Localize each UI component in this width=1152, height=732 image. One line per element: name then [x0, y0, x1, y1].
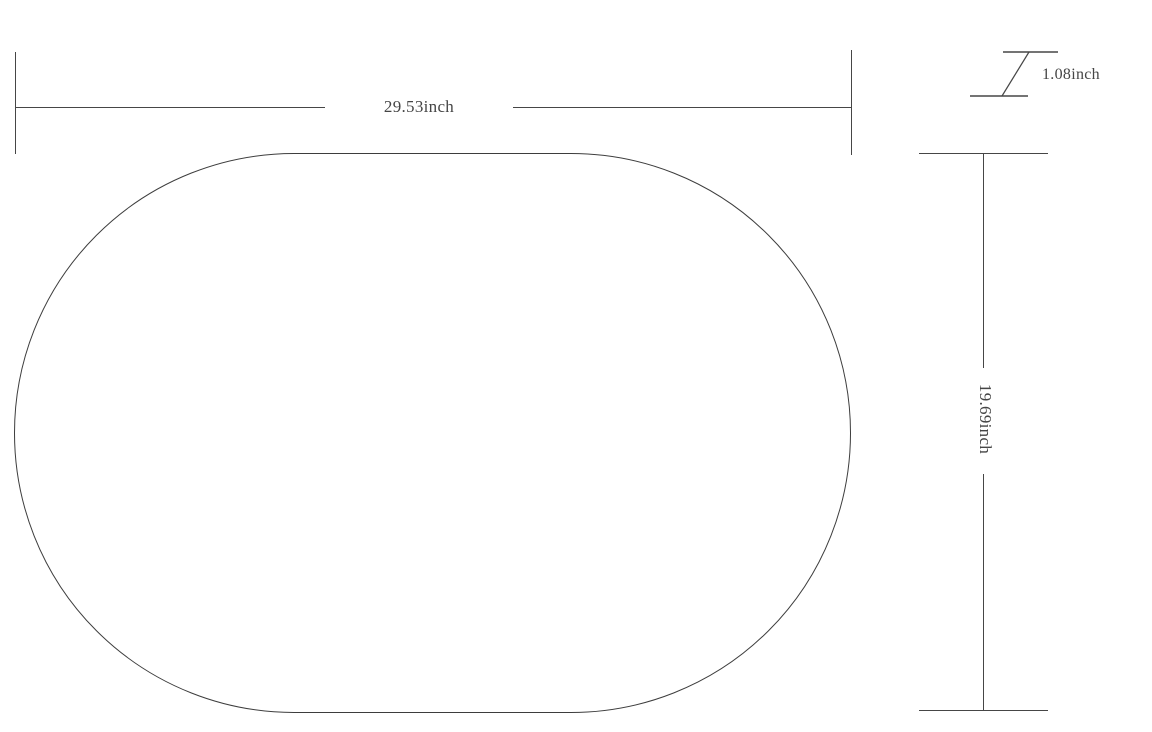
width-dimension-line-right [513, 107, 851, 108]
height-dimension-line-top [983, 154, 984, 368]
oval-rug-outline-shape [14, 153, 851, 713]
height-dimension-label: 19.69inch [974, 368, 996, 470]
width-dimension-label: 29.53inch [325, 96, 513, 118]
height-dimension-line-bottom [983, 474, 984, 710]
width-dimension-line-left [15, 107, 325, 108]
height-dimension-bottom-tick [919, 710, 1048, 711]
thickness-dimension-label: 1.08inch [1042, 64, 1100, 86]
dimension-drawing-canvas: 29.53inch 19.69inch 1.08inch [0, 0, 1152, 732]
width-dimension-left-tick [15, 52, 16, 154]
width-dimension-right-tick [851, 50, 852, 155]
